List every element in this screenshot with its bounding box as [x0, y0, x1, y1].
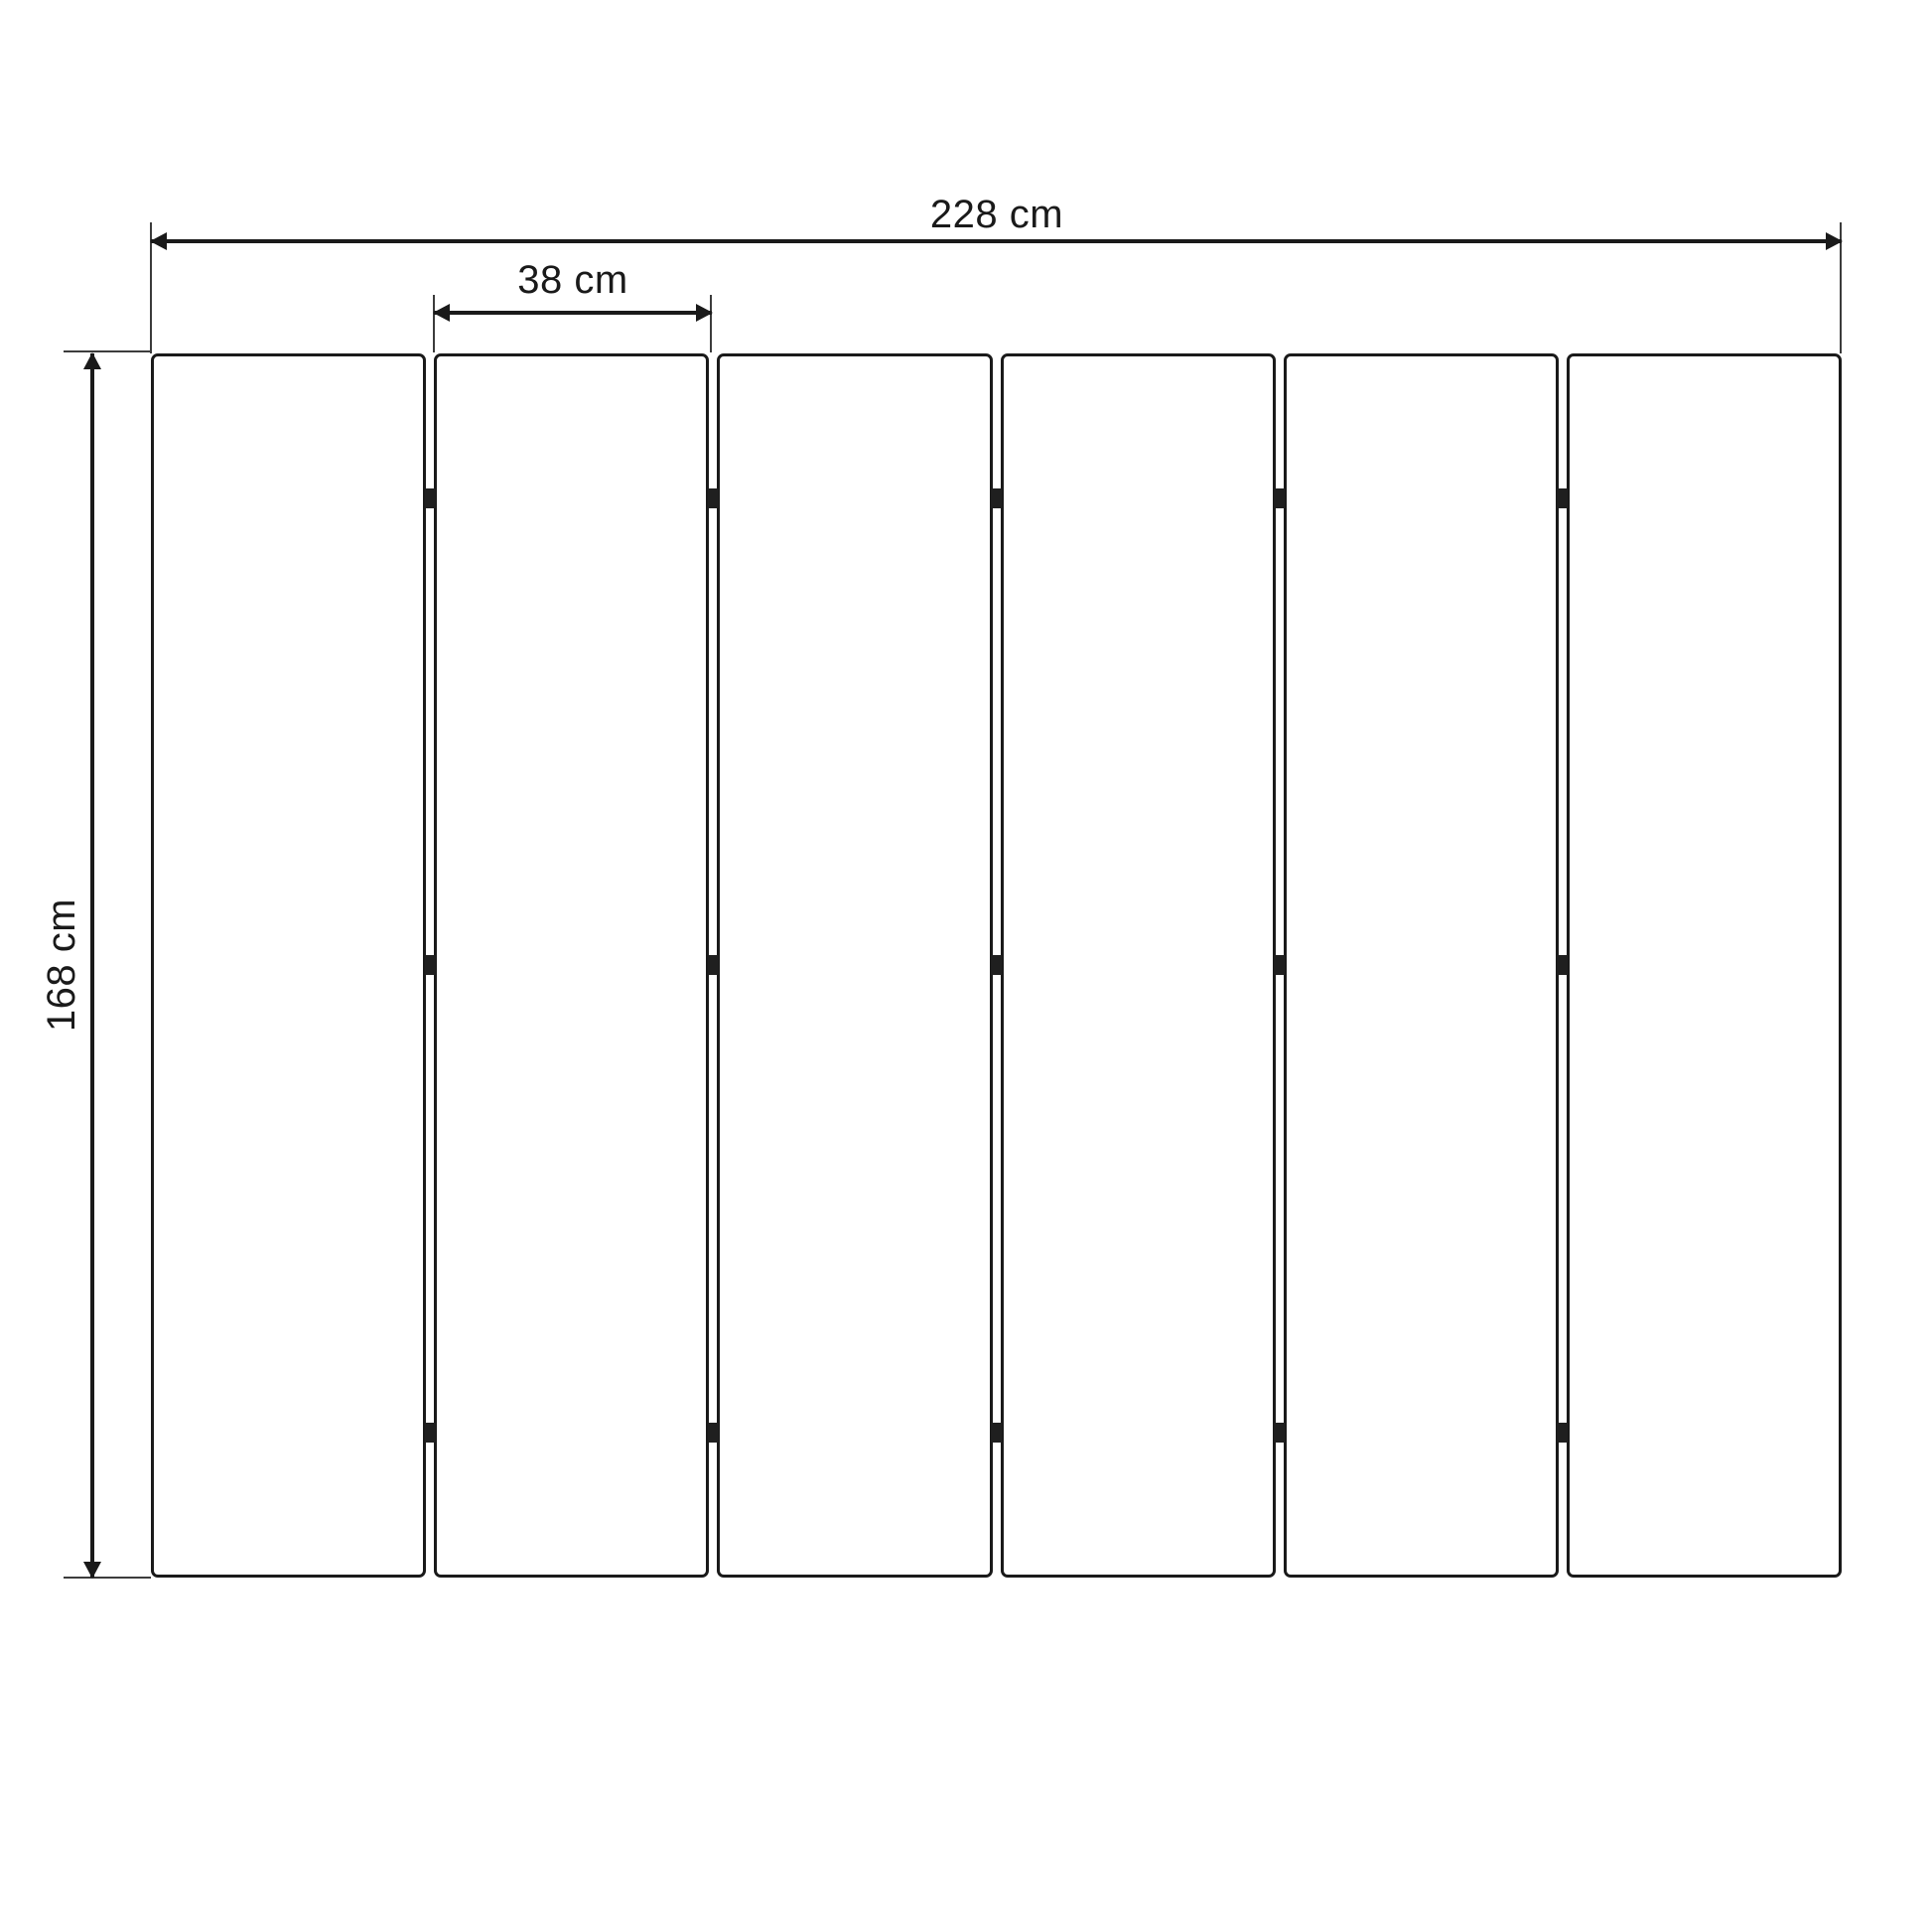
hinge-connector-2-1 [708, 488, 719, 508]
panel-3 [717, 353, 992, 1578]
hinge-connector-5-2 [1557, 955, 1568, 975]
hinge-connector-3-3 [991, 1423, 1002, 1443]
hinge-connector-4-3 [1274, 1423, 1285, 1443]
dimension-drawing: 228 cm 38 cm 168 cm [0, 0, 1932, 1932]
total-width-dimension-label: 228 cm [930, 195, 1063, 234]
hinge-connector-2-3 [708, 1423, 719, 1443]
hinge-connector-1-3 [425, 1423, 436, 1443]
hinge-connector-4-1 [1274, 488, 1285, 508]
hinge-connector-5-3 [1557, 1423, 1568, 1443]
height-dimension-line [90, 353, 94, 1578]
hinge-connector-2-2 [708, 955, 719, 975]
hinge-connector-1-1 [425, 488, 436, 508]
total-width-dimension-line [151, 239, 1842, 243]
hinge-connector-3-1 [991, 488, 1002, 508]
hinge-connector-4-2 [1274, 955, 1285, 975]
panel-4 [1001, 353, 1276, 1578]
panel-2 [434, 353, 709, 1578]
hinge-connector-1-2 [425, 955, 436, 975]
hinge-connector-5-1 [1557, 488, 1568, 508]
panel-1 [151, 353, 426, 1578]
hinge-connector-3-2 [991, 955, 1002, 975]
extension-line-height-bottom [64, 1577, 151, 1579]
panel-width-dimension-line [434, 311, 712, 315]
height-dimension-label: 168 cm [42, 898, 81, 1032]
extension-line-height-top [64, 350, 151, 352]
panel-width-dimension-label: 38 cm [517, 260, 627, 300]
panel-5 [1284, 353, 1559, 1578]
panel-6 [1567, 353, 1842, 1578]
